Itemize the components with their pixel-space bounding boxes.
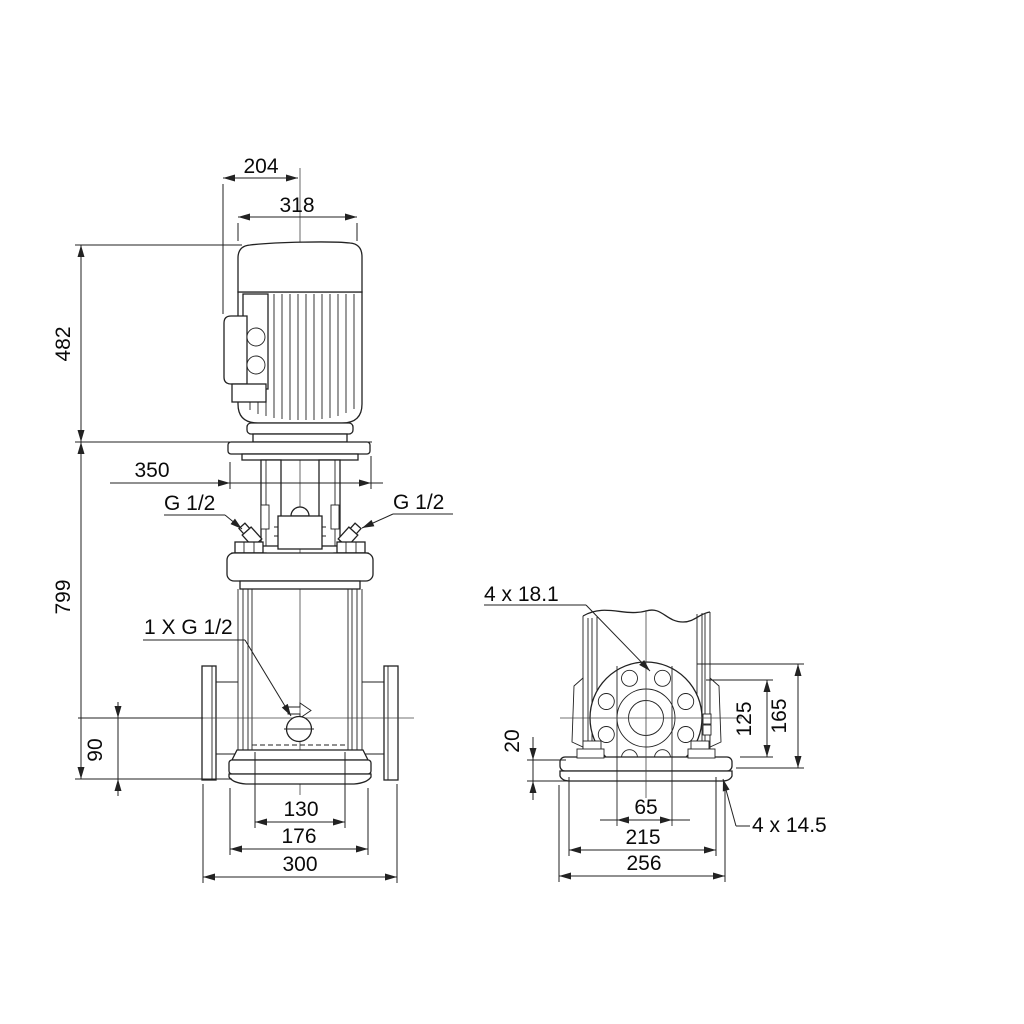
- flow-arrow-icon: [288, 703, 311, 718]
- dim-215-text: 215: [625, 826, 660, 849]
- break-line: [583, 610, 710, 622]
- dim-65: 65: [600, 796, 690, 820]
- dim-165-text: 165: [768, 698, 791, 733]
- cable-entry-hole: [247, 328, 265, 346]
- dim-90: 90: [78, 702, 203, 796]
- shaft-end: [291, 507, 309, 516]
- dim-204-text: 204: [243, 155, 278, 178]
- front-view: 204 318 482 799: [52, 155, 453, 883]
- terminal-box-cover: [224, 316, 247, 384]
- label-g12-right: G 1/2: [362, 491, 453, 528]
- side-wing-right: [710, 678, 721, 747]
- motor-fan-cover: [238, 242, 362, 292]
- front-base: [229, 750, 371, 784]
- dim-318-text: 318: [279, 194, 314, 217]
- pump-head: [227, 553, 373, 589]
- terminal-box: [224, 294, 268, 402]
- dim-350: 350: [110, 456, 383, 489]
- dim-256-text: 256: [626, 852, 661, 875]
- dim-176-text: 176: [281, 825, 316, 848]
- dim-350-text: 350: [134, 459, 169, 482]
- label-flange-holes: 4 x 18.1: [484, 583, 650, 671]
- shaft-coupling: [274, 507, 326, 549]
- side-view: 4 x 18.1 20 125 165: [484, 583, 827, 882]
- dim-130-text: 130: [283, 798, 318, 821]
- label-g12-right-text: G 1/2: [393, 491, 444, 514]
- dim-65-text: 65: [634, 796, 657, 819]
- terminal-box-step: [232, 384, 266, 402]
- label-g12-left-text: G 1/2: [164, 492, 215, 515]
- dim-300-text: 300: [282, 853, 317, 876]
- motor-flange-rings: [247, 423, 353, 442]
- side-wing-left: [572, 678, 583, 747]
- dim-20-text: 20: [501, 729, 524, 752]
- label-drain-text: 1 X G 1/2: [144, 616, 233, 639]
- dim-318: 318: [238, 194, 357, 241]
- label-g12-left: G 1/2: [164, 492, 242, 529]
- label-base-holes: 4 x 14.5: [723, 779, 827, 837]
- dim-125-text: 125: [733, 701, 756, 736]
- drawing-canvas: 204 318 482 799: [0, 0, 1024, 1024]
- label-drain: 1 X G 1/2: [143, 616, 291, 716]
- dim-482-text: 482: [52, 326, 75, 361]
- cable-entry-hole: [247, 356, 265, 374]
- label-base-holes-text: 4 x 14.5: [752, 814, 827, 837]
- drain-plug: [284, 703, 314, 742]
- dim-90-text: 90: [84, 738, 107, 761]
- pump-dimension-drawing: 204 318 482 799: [0, 0, 1024, 1024]
- label-flange-holes-text: 4 x 18.1: [484, 583, 559, 606]
- dim-799-text: 799: [52, 579, 75, 614]
